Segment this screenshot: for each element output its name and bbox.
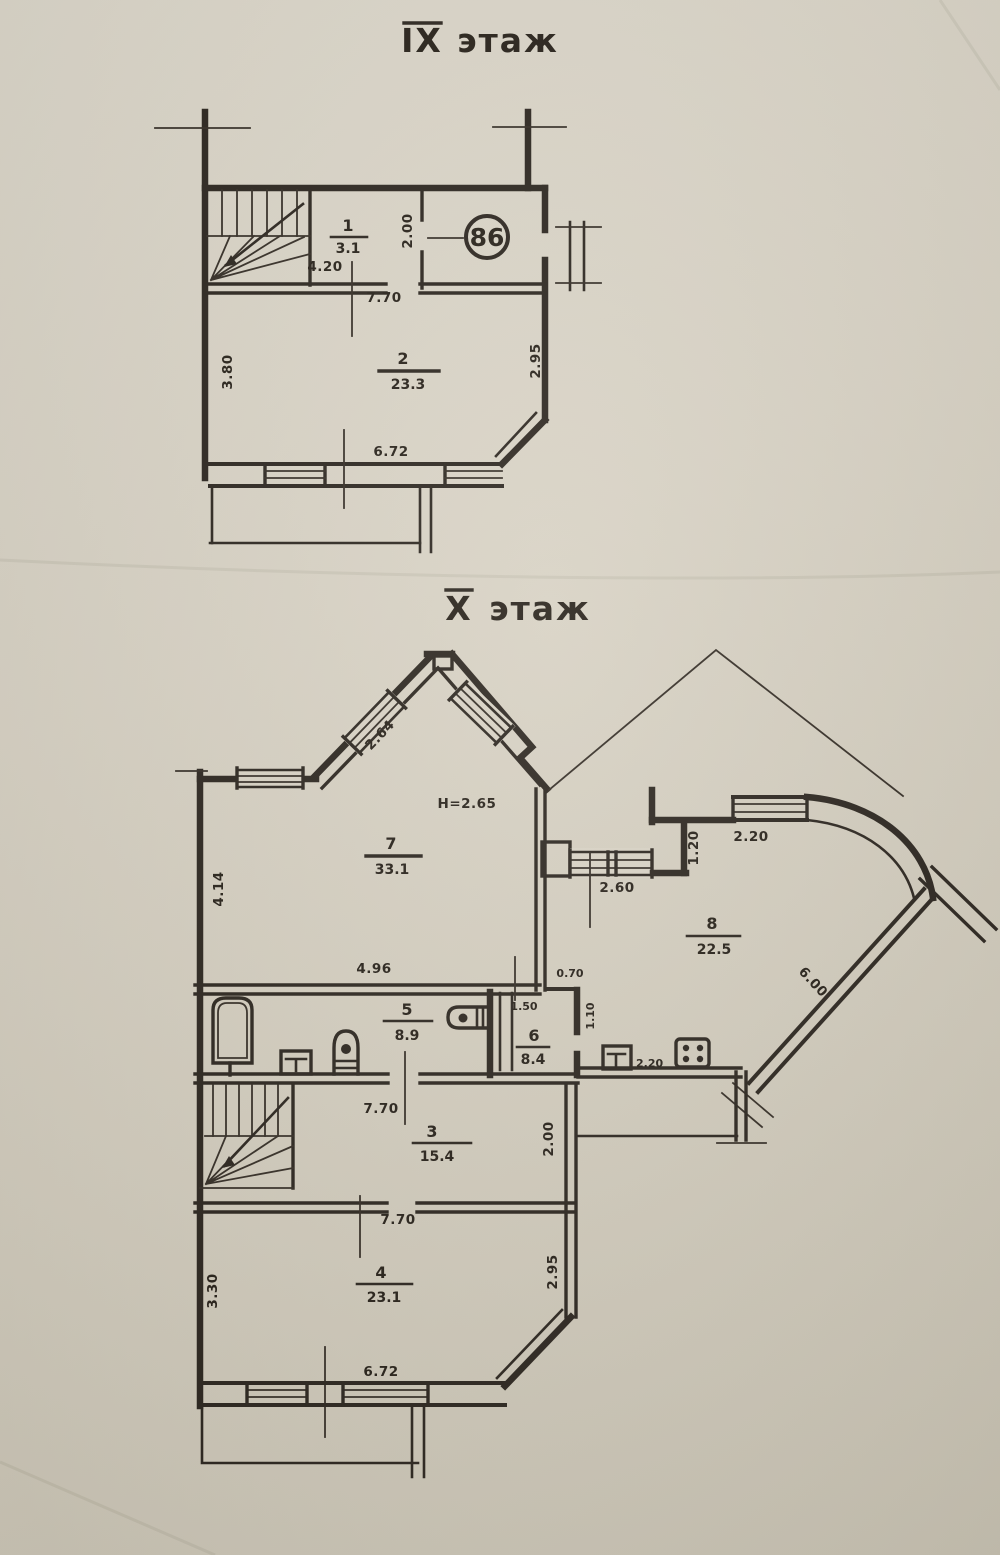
dim-bath-width: 4.96: [356, 961, 391, 977]
lower-stairs: [200, 1085, 293, 1188]
upper-title-roman: IX: [401, 21, 443, 60]
room-4-number: 4: [375, 1263, 386, 1282]
window-icon: [343, 1390, 428, 1397]
corridor-wall: [578, 867, 996, 1143]
room-4-area: 23.1: [367, 1290, 402, 1306]
upper-dim-ticks: [344, 262, 352, 508]
room-6-number: 6: [528, 1026, 539, 1045]
dim-niche-depth: 1.20: [686, 830, 702, 865]
dim-duct-width: 0.70: [556, 967, 583, 980]
apartment-number-badge: 86: [466, 216, 508, 258]
room-2-area: 23.3: [391, 377, 426, 393]
lower-interior-walls: [195, 985, 741, 1386]
dim-hall-top-width: 7.70: [363, 1101, 398, 1117]
roof-outline: [549, 650, 903, 796]
window-icon: [247, 1390, 307, 1397]
upper-entry-corridor: [428, 222, 601, 290]
lower-title-roman: X: [445, 589, 472, 628]
upper-stairs: [207, 190, 310, 280]
dim-hall-depth: 2.00: [541, 1121, 557, 1156]
lower-floor-plan: X этаж: [176, 589, 996, 1477]
room-8-number: 8: [706, 914, 717, 933]
upper-title: IX этаж: [401, 21, 559, 60]
height-note: H=2.65: [438, 796, 497, 812]
dim-bottom-width: 6.72: [373, 444, 408, 460]
dim-hall-bottom-width: 7.70: [380, 1212, 415, 1228]
window-icon: [265, 471, 325, 478]
window-top-left: [237, 768, 303, 788]
lower-title: X этаж: [445, 589, 591, 628]
room-5-area: 8.9: [395, 1028, 420, 1044]
lower-bottom-wall-windows: [200, 1383, 505, 1405]
dim-left-upper-height: 4.14: [211, 871, 227, 906]
upper-walls: [155, 112, 566, 478]
sink-icon: [448, 1007, 487, 1028]
upper-floor-plan: IX этаж: [155, 21, 601, 552]
lower-title-word: этаж: [489, 589, 591, 628]
room-3-area: 15.4: [420, 1149, 455, 1165]
dim-bay-width: 2.60: [599, 880, 634, 896]
apartment-number: 86: [470, 223, 505, 252]
upper-title-word: этаж: [457, 21, 559, 60]
upper-balcony: [210, 486, 431, 552]
room-7-area: 33.1: [375, 862, 410, 878]
dim-corridor-length: 6.00: [795, 964, 831, 1001]
dim-room4-right-height: 2.95: [545, 1254, 561, 1289]
room-8-area: 22.5: [697, 942, 732, 958]
room-3-number: 3: [426, 1122, 437, 1141]
scanned-floor-plan-page: IX этаж: [0, 0, 1000, 1555]
room-1-area: 3.1: [336, 241, 361, 257]
dim-left-lower-height: 3.30: [205, 1273, 221, 1308]
room-5-number: 5: [401, 1000, 412, 1019]
lower-balcony: [202, 1405, 424, 1477]
upper-bottom-wall-windows: [210, 464, 502, 486]
stove-icon: [676, 1039, 709, 1067]
window-icon: [445, 471, 502, 478]
dim-bottom-width: 6.72: [363, 1364, 398, 1380]
dim-room1-depth: 2.00: [400, 213, 416, 248]
kitchen-bay-window: [542, 842, 652, 878]
window-terrace: [733, 797, 807, 820]
room-6-area: 8.4: [521, 1052, 546, 1068]
lower-dimensions: 2.64 H=2.65 2.60 1.20 2.20 4.14 4.96 0.7…: [205, 717, 831, 1380]
dim-wc-depth: 1.10: [584, 1002, 597, 1029]
room-7-number: 7: [385, 834, 396, 853]
bathroom-fixtures: [213, 998, 487, 1075]
dim-hall-width: 7.70: [366, 290, 401, 306]
dim-terrace-window: 2.20: [733, 829, 768, 845]
dim-room1-width: 4.20: [307, 259, 342, 275]
room-1-number: 1: [342, 216, 353, 235]
dim-right-height: 2.95: [528, 343, 544, 378]
lower-room-labels: 7 33.1 8 22.5 5 8.9 6 8.4 3 15.4 4 23.1: [357, 834, 740, 1306]
floor-plan-drawing: IX этаж: [0, 0, 1000, 1555]
central-wall: [536, 789, 545, 990]
curved-wall: [807, 797, 933, 898]
dim-wc-width: 1.50: [510, 1000, 537, 1013]
dim-kitchen: 2.20: [636, 1057, 663, 1070]
dim-left-height: 3.80: [220, 354, 236, 389]
room-2-number: 2: [397, 349, 408, 368]
